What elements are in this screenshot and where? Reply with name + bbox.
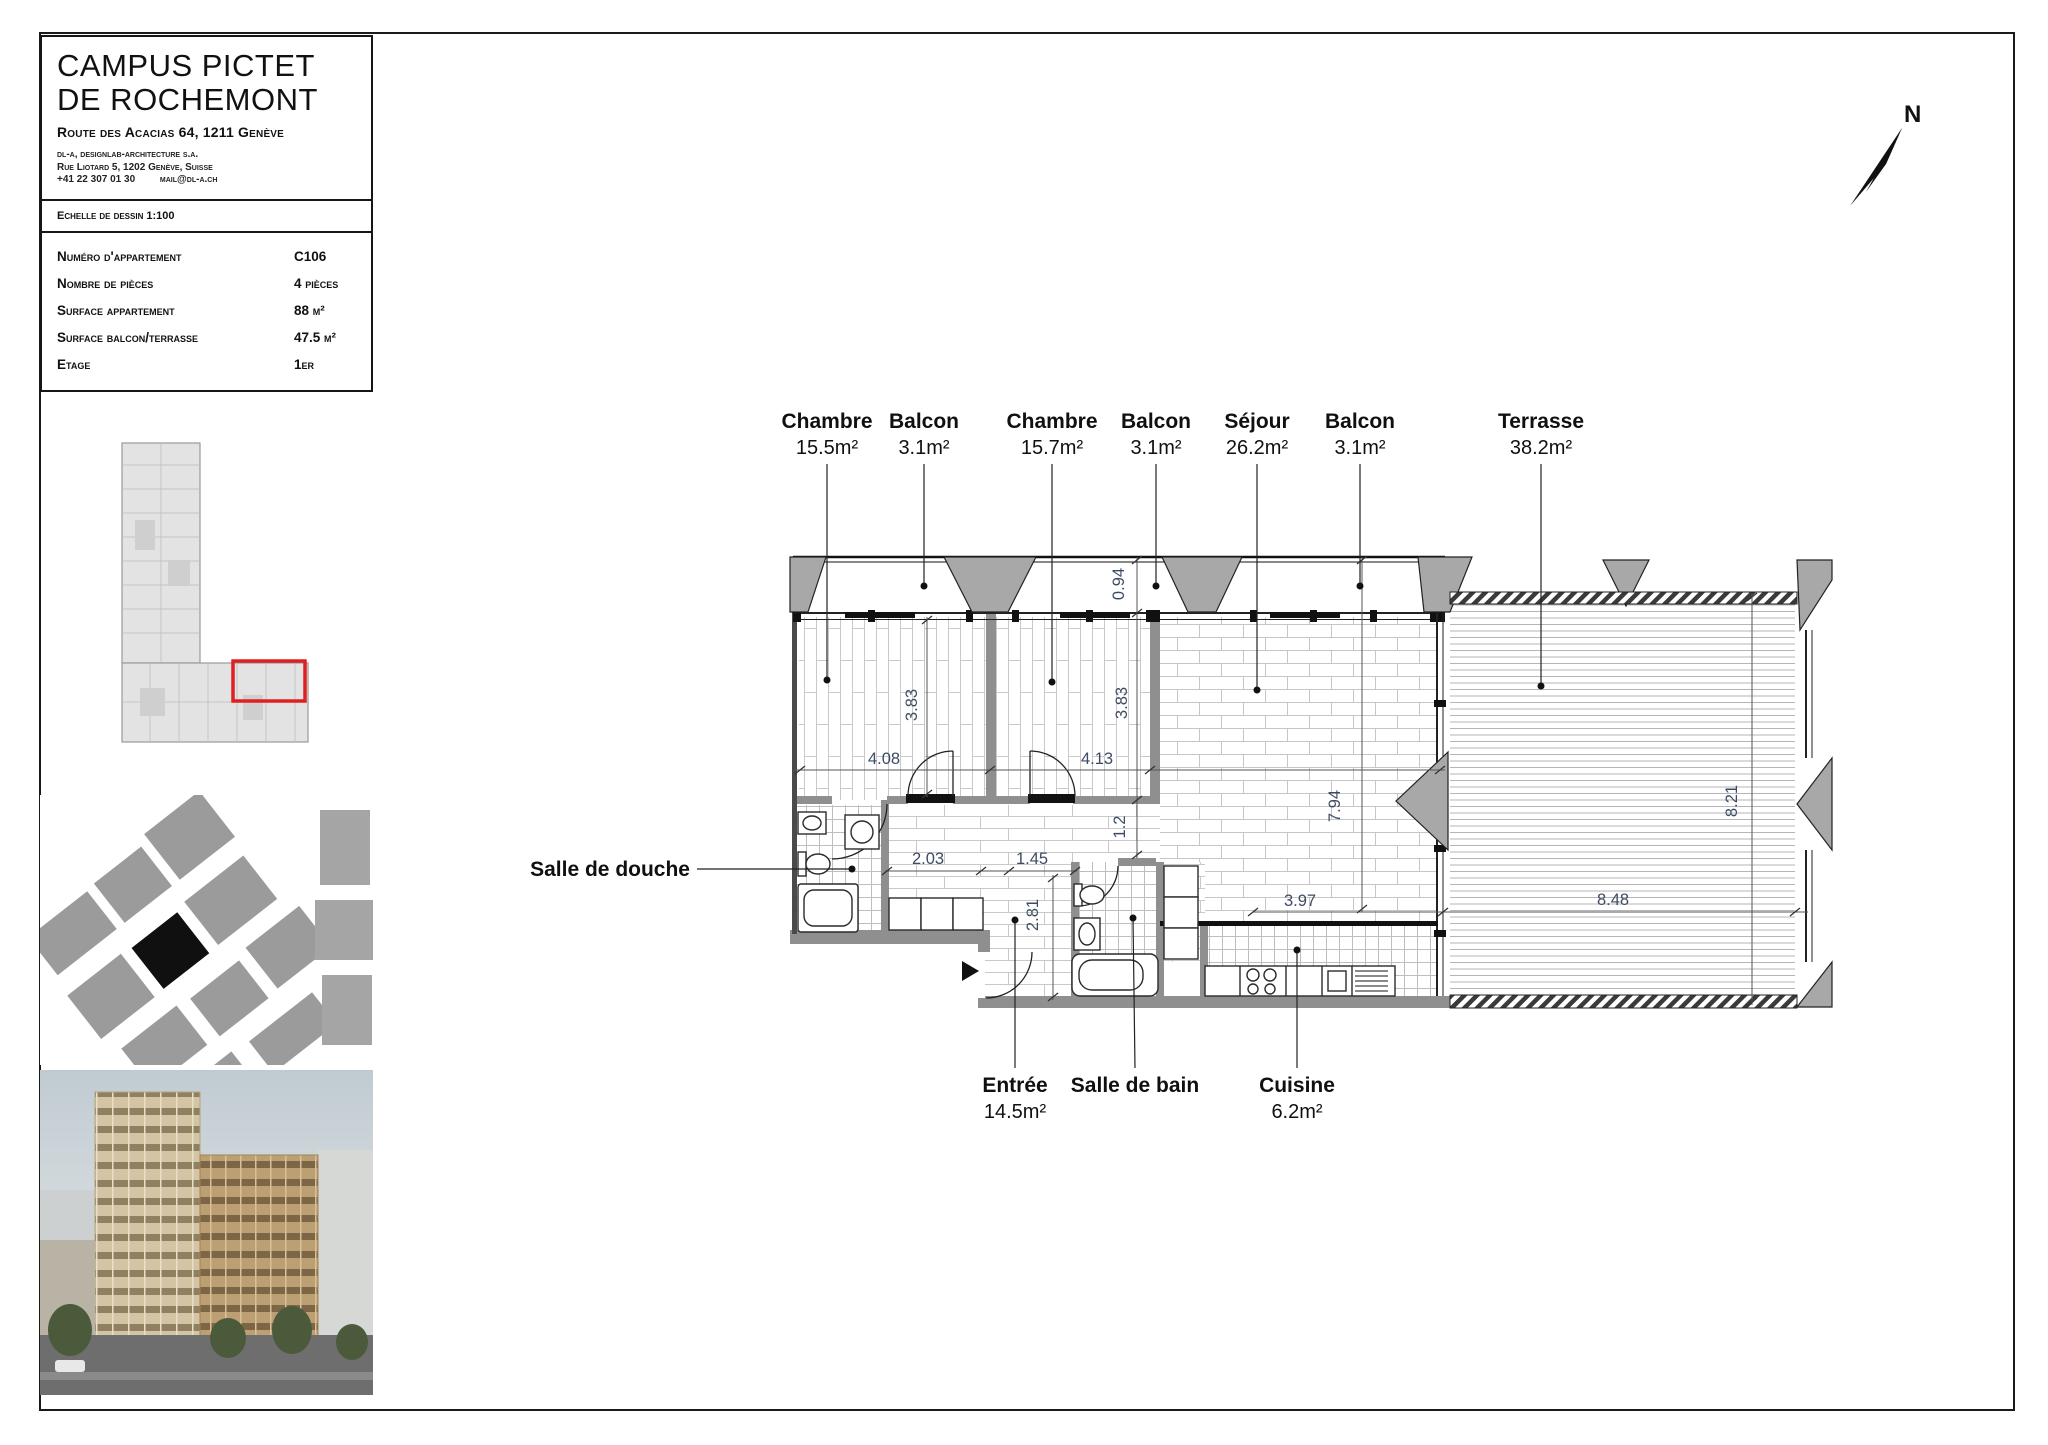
floor-plan-sheet: { "sheet": { "project": { "title_line1":… <box>0 0 2048 1445</box>
dim-terrasse-width: 8.48 <box>1597 891 1629 909</box>
dim-balcon-depth: 0.94 <box>1110 568 1128 600</box>
building-photo <box>40 1070 373 1395</box>
info-value: C106 <box>294 249 326 264</box>
info-value: 47.5 m² <box>294 330 336 345</box>
architect-phone: +41 22 307 01 30 <box>57 174 135 185</box>
svg-text:3.1m²: 3.1m² <box>898 437 949 459</box>
dim-chambre2-depth: 3.83 <box>1113 687 1131 719</box>
apartment-info-table: Numéro d'appartement C106 Nombre de pièc… <box>40 231 373 392</box>
project-title-line2: DE ROCHEMONT <box>57 83 363 117</box>
room-label-chambre2: Chambre <box>1006 410 1097 433</box>
douche-wc <box>798 852 806 876</box>
dim-couloir-width: 1.2 <box>1111 816 1129 839</box>
entrance-arrow-icon <box>962 961 979 981</box>
info-row-balcon: Surface balcon/terrasse 47.5 m² <box>57 330 371 357</box>
svg-text:26.2m²: 26.2m² <box>1226 437 1289 459</box>
project-title-line1: CAMPUS PICTET <box>57 49 363 83</box>
info-label: Numéro d'appartement <box>57 249 182 264</box>
dim-couloir-seg2: 1.45 <box>1016 850 1048 868</box>
architect-address: Rue Liotard 5, 1202 Genève, Suisse <box>57 162 363 175</box>
floor-plan: Chambre 15.5m² Balcon 3.1m² Chambre 15.7… <box>530 410 1832 1123</box>
dim-chambre1-depth: 3.83 <box>903 689 921 721</box>
room-label-balcon2: Balcon <box>1121 410 1191 433</box>
room-label-salle-de-bain: Salle de bain <box>1071 1074 1199 1097</box>
svg-text:3.1m²: 3.1m² <box>1130 437 1181 459</box>
svg-text:15.7m²: 15.7m² <box>1021 437 1084 459</box>
car <box>55 1360 85 1372</box>
architect-email: mail@dl-a.ch <box>160 174 217 185</box>
dim-terrasse-depth: 8.21 <box>1723 785 1741 817</box>
dim-chambre1-width: 4.08 <box>868 750 900 768</box>
scale-block: Echelle de dessin 1:100 <box>40 199 373 234</box>
dim-sejour-depth: 7.94 <box>1326 790 1344 822</box>
room-label-chambre1: Chambre <box>781 410 872 433</box>
svg-text:3.1m²: 3.1m² <box>1334 437 1385 459</box>
scale-note: Echelle de dessin 1:100 <box>57 210 175 222</box>
info-value: 4 pièces <box>294 276 338 291</box>
washer <box>845 815 879 849</box>
room-label-entree: Entrée <box>982 1074 1047 1097</box>
architect-name: dl-a, designlab-architecture s.a. <box>57 149 363 162</box>
project-title-block: CAMPUS PICTET DE ROCHEMONT Route des Aca… <box>40 35 373 201</box>
info-label: Surface appartement <box>57 303 175 318</box>
svg-text:14.5m²: 14.5m² <box>984 1101 1047 1123</box>
info-row-surface: Surface appartement 88 m² <box>57 303 371 330</box>
info-row-etage: Etage 1er <box>57 357 371 384</box>
info-label: Etage <box>57 357 90 372</box>
svg-text:15.5m²: 15.5m² <box>796 437 859 459</box>
closet-column <box>1164 866 1198 897</box>
room-label-terrasse: Terrasse <box>1498 410 1584 433</box>
room-label-balcon1: Balcon <box>889 410 959 433</box>
room-label-sejour: Séjour <box>1224 410 1289 433</box>
info-row-pieces: Nombre de pièces 4 pièces <box>57 276 371 303</box>
room-label-balcon3: Balcon <box>1325 410 1395 433</box>
info-label: Surface balcon/terrasse <box>57 330 198 345</box>
dim-entree-depth: 2.81 <box>1024 899 1042 931</box>
svg-text:6.2m²: 6.2m² <box>1271 1101 1322 1123</box>
room-label-cuisine: Cuisine <box>1259 1074 1335 1097</box>
dim-chambre2-width: 4.13 <box>1081 750 1113 768</box>
wardrobe <box>889 898 921 930</box>
svg-text:38.2m²: 38.2m² <box>1510 437 1573 459</box>
north-arrow-icon <box>1850 128 1902 206</box>
dim-couloir-seg1: 2.03 <box>912 850 944 868</box>
info-label: Nombre de pièces <box>57 276 153 291</box>
info-row-numero: Numéro d'appartement C106 <box>57 249 371 276</box>
room-label-salle-de-douche: Salle de douche <box>530 858 690 881</box>
north-label: N <box>1904 101 1921 128</box>
dim-cuisine-width: 3.97 <box>1284 892 1316 910</box>
info-value: 1er <box>294 357 314 372</box>
info-value: 88 m² <box>294 303 325 318</box>
key-plan <box>122 443 308 742</box>
project-address: Route des Acacias 64, 1211 Genève <box>57 124 363 140</box>
